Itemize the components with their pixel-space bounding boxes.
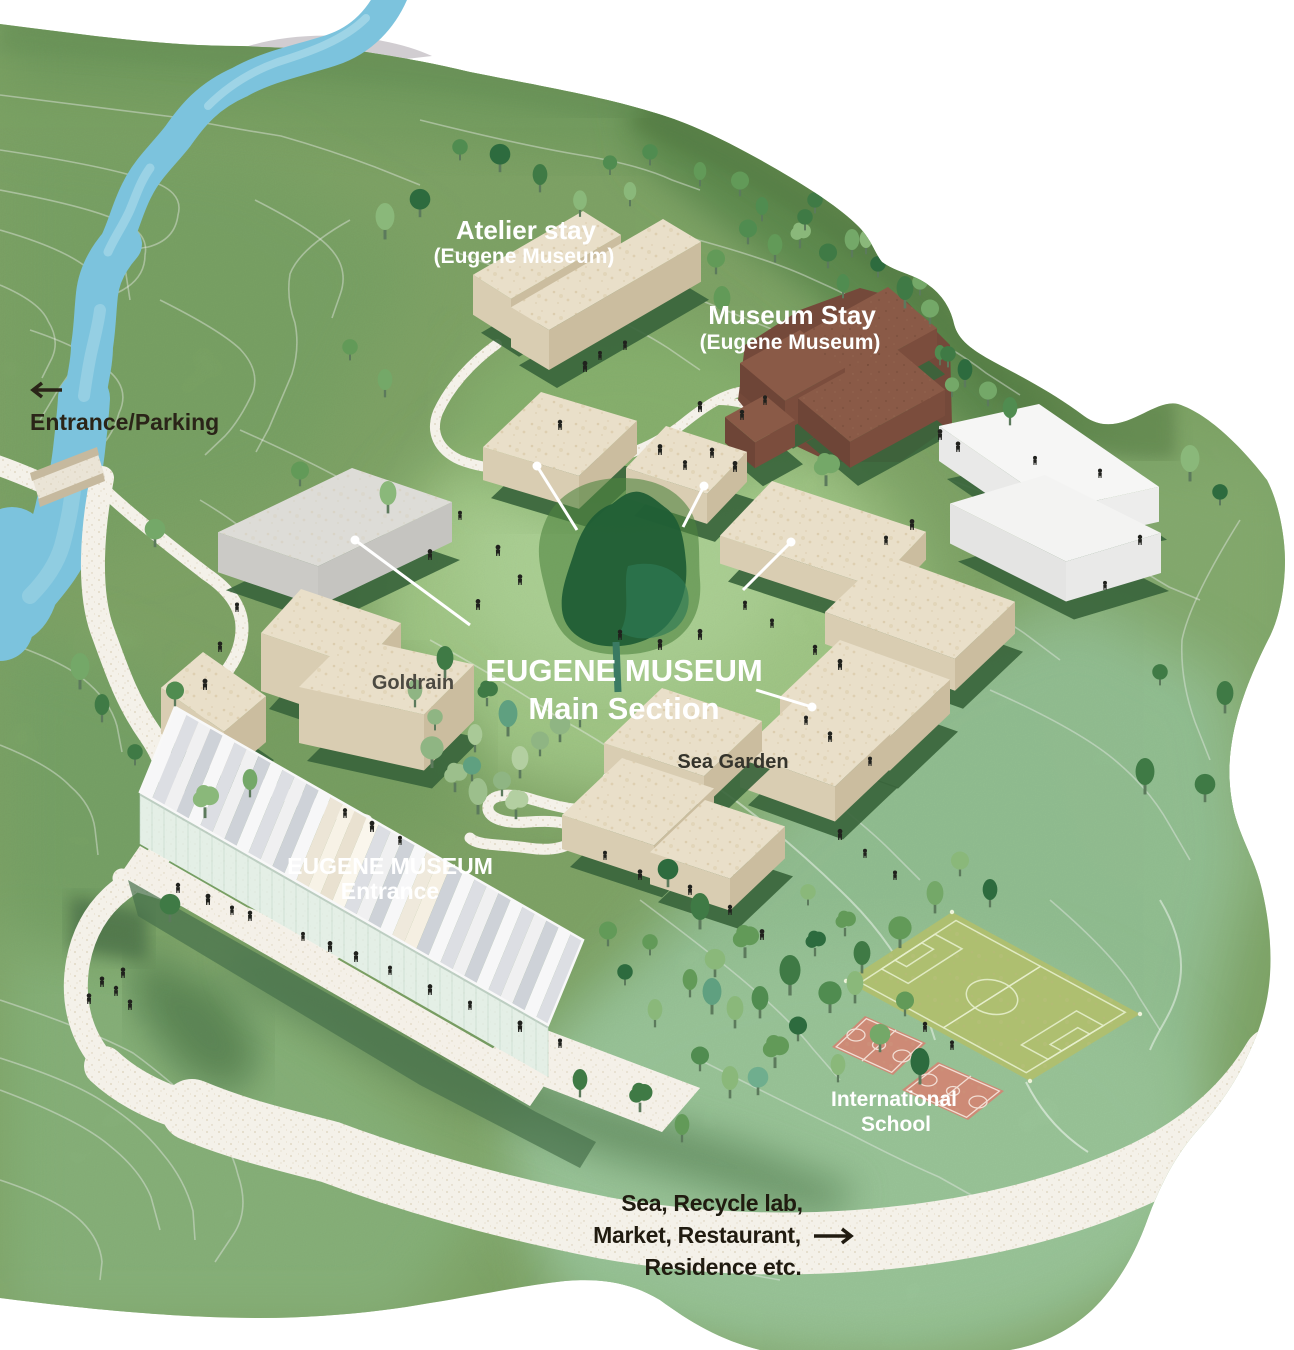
svg-text:Sea, Recycle lab,: Sea, Recycle lab, [621,1190,803,1216]
svg-text:Entrance/Parking: Entrance/Parking [30,409,219,435]
svg-text:Main Section: Main Section [528,691,719,726]
svg-text:International: International [831,1088,957,1111]
svg-text:Goldrain: Goldrain [372,672,454,694]
svg-text:Museum Stay: Museum Stay [708,300,876,330]
svg-text:(Eugene Museum): (Eugene Museum) [700,331,881,354]
svg-text:Sea Garden: Sea Garden [677,751,788,773]
svg-text:Atelier stay: Atelier stay [456,215,597,245]
svg-text:EUGENE MUSEUM: EUGENE MUSEUM [287,853,493,879]
svg-text:Residence etc.: Residence etc. [645,1254,802,1280]
svg-text:Market, Restaurant,: Market, Restaurant, [593,1222,801,1248]
svg-text:Entrance: Entrance [341,878,439,904]
svg-text:School: School [861,1113,931,1136]
svg-text:EUGENE MUSEUM: EUGENE MUSEUM [485,653,762,688]
svg-text:(Eugene Museum): (Eugene Museum) [434,245,615,268]
